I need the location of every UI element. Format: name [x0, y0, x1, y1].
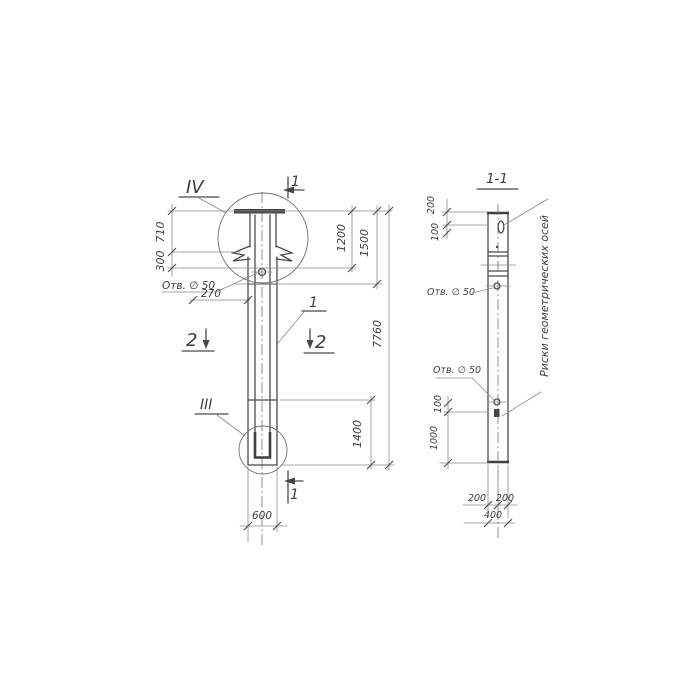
detail-circle-bottom	[239, 426, 287, 474]
hole-label-section-bottom: Отв. ∅ 50	[433, 365, 481, 376]
dim-710: 710	[154, 222, 167, 243]
dim-200-left-text: 200	[468, 493, 486, 504]
section-2-right-text: 2	[315, 332, 326, 353]
dim-600-text: 600	[252, 510, 272, 522]
dim-270: 270	[201, 288, 221, 300]
section-1-bottom-text: 1	[290, 487, 299, 503]
main-view: 710 300 Отв. ∅ 50 270 1200 1500	[154, 174, 394, 548]
section-1-top-text: 1	[291, 174, 300, 190]
dim-1500: 1500	[358, 206, 381, 289]
section-top-slot	[498, 221, 504, 233]
section-mark-1-bottom: 1	[284, 471, 303, 503]
dim-400-text: 400	[484, 510, 502, 521]
dim-710-300: 710 300	[154, 204, 176, 276]
axes-note: Риски геометрических осей	[502, 199, 551, 416]
dim-100-top-text: 100	[430, 223, 441, 241]
axes-note-text: Риски геометрических осей	[538, 215, 551, 377]
hole-callout-section-top: Отв. ∅ 50	[427, 287, 493, 298]
section-title: 1-1	[486, 171, 508, 187]
dim-300: 300	[154, 251, 167, 272]
dim-1200: 1200	[335, 206, 356, 272]
hole-callout-main: Отв. ∅ 50 270	[162, 273, 257, 304]
detail-marker-iii: III	[195, 397, 245, 436]
axis-dot	[496, 246, 498, 248]
section-mark-2-left: 2	[182, 329, 214, 351]
column-shaft-outline	[248, 257, 277, 465]
dim-200-100-top: 200 100	[426, 196, 488, 241]
dim-1400: 1400	[351, 396, 375, 469]
section-view: 1-1	[426, 171, 551, 540]
dim-1000-text: 1000	[429, 426, 440, 450]
dim-100-bottom-text: 100	[433, 395, 444, 413]
column-head-outline	[233, 214, 292, 432]
drawing-sheet: 710 300 Отв. ∅ 50 270 1200 1500	[0, 0, 700, 700]
marker-iv-text: IV	[186, 177, 205, 198]
marker-iii-text: III	[200, 397, 212, 413]
detail-marker-iv: IV	[179, 177, 226, 213]
axis-risk-mark	[494, 409, 500, 417]
section-2-left-text: 2	[186, 330, 197, 351]
dim-200-right-text: 200	[496, 493, 514, 504]
section-mark-2-right: 2	[304, 329, 334, 353]
dim-100-1000-bottom: 100 1000	[429, 395, 488, 469]
dim-7760: 7760	[371, 205, 393, 470]
dim-600: 600	[240, 510, 287, 530]
dim-1200-text: 1200	[335, 224, 348, 252]
extension-lines	[168, 211, 394, 542]
hole-label-section-top: Отв. ∅ 50	[427, 287, 475, 298]
dim-1400-text: 1400	[351, 420, 364, 448]
section-mark-1-top: 1	[283, 174, 304, 198]
pile-column-drawing: 710 300 Отв. ∅ 50 270 1200 1500	[0, 0, 700, 700]
detail-circle-top	[218, 193, 308, 283]
dim-1500-text: 1500	[358, 229, 371, 257]
dim-7760-text: 7760	[371, 320, 384, 348]
part-label-text: 1	[309, 295, 318, 311]
hole-callout-section-bottom: Отв. ∅ 50	[433, 365, 494, 400]
head-flare-right	[276, 246, 292, 261]
dim-200-top-text: 200	[426, 196, 437, 214]
section-bottom-hole	[488, 399, 506, 405]
dim-200-200-400: 200 200 400	[463, 465, 517, 527]
